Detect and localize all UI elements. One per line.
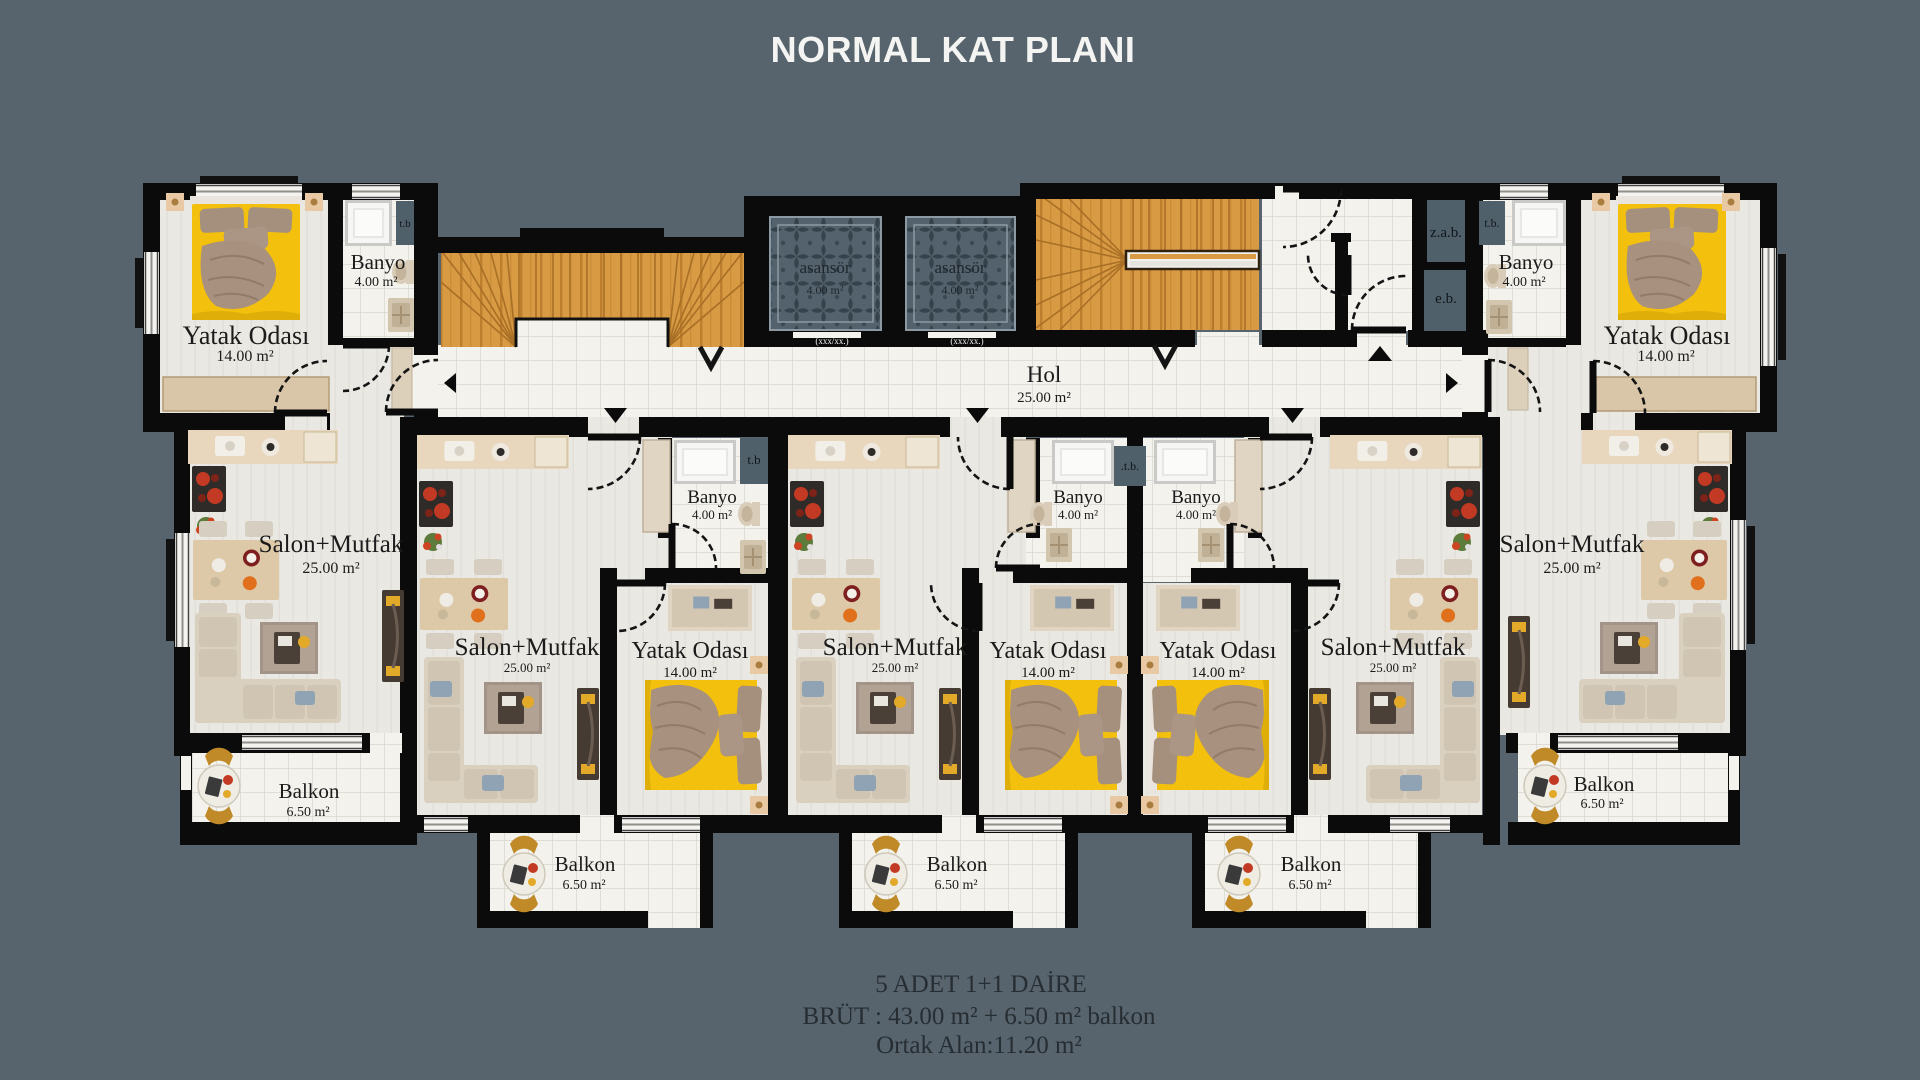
svg-text:t.b: t.b (747, 452, 760, 467)
svg-text:Yatak Odası: Yatak Odası (1160, 638, 1277, 664)
svg-text:Salon+Mutfak: Salon+Mutfak (1500, 531, 1645, 558)
svg-text:25.00 m²: 25.00 m² (1543, 560, 1600, 577)
svg-text:6.50 m²: 6.50 m² (562, 878, 605, 893)
svg-text:4.00 m²: 4.00 m² (1058, 507, 1098, 522)
svg-text:Banyo: Banyo (1053, 487, 1103, 508)
svg-text:25.00 m²: 25.00 m² (872, 660, 919, 675)
svg-text:z.a.b.: z.a.b. (1430, 225, 1462, 241)
svg-text:6.50 m²: 6.50 m² (934, 878, 977, 893)
svg-text:t.b: t.b (399, 218, 411, 230)
svg-text:Balkon: Balkon (927, 852, 988, 876)
svg-text:(xxx/xx.): (xxx/xx.) (950, 336, 983, 346)
svg-text:Yatak Odası: Yatak Odası (1604, 321, 1731, 350)
svg-text:Balkon: Balkon (279, 779, 340, 803)
svg-text:25.00 m²: 25.00 m² (504, 660, 551, 675)
svg-text:(xxx/xx.): (xxx/xx.) (815, 336, 848, 346)
svg-text:Yatak Odası: Yatak Odası (183, 321, 310, 350)
svg-text:25.00 m²: 25.00 m² (1370, 660, 1417, 675)
svg-text:Yatak Odası: Yatak Odası (632, 638, 749, 664)
svg-text:Salon+Mutfak: Salon+Mutfak (259, 531, 404, 558)
svg-text:25.00 m²: 25.00 m² (302, 560, 359, 577)
svg-text:14.00 m²: 14.00 m² (1637, 348, 1694, 365)
svg-text:Banyo: Banyo (687, 487, 737, 508)
svg-text:4.00 m²: 4.00 m² (1502, 275, 1545, 290)
svg-text:BRÜT : 43.00 m² + 6.50 m² balk: BRÜT : 43.00 m² + 6.50 m² balkon (803, 1003, 1156, 1030)
svg-text:Salon+Mutfak: Salon+Mutfak (455, 634, 600, 661)
svg-text:e.b.: e.b. (1435, 291, 1457, 307)
svg-text:14.00 m²: 14.00 m² (1191, 665, 1245, 681)
svg-text:4.00 m²: 4.00 m² (807, 283, 844, 297)
svg-text:Yatak Odası: Yatak Odası (990, 638, 1107, 664)
svg-text:14.00 m²: 14.00 m² (216, 348, 273, 365)
svg-text:Hol: Hol (1027, 362, 1062, 387)
svg-text:4.00 m²: 4.00 m² (1176, 507, 1216, 522)
svg-text:4.00 m²: 4.00 m² (692, 507, 732, 522)
svg-text:Balkon: Balkon (1281, 852, 1342, 876)
svg-text:25.00 m²: 25.00 m² (1017, 390, 1071, 406)
svg-text:Salon+Mutfak: Salon+Mutfak (1321, 634, 1466, 661)
svg-text:Balkon: Balkon (555, 852, 616, 876)
svg-text:Banyo: Banyo (1499, 250, 1554, 274)
svg-text:6.50 m²: 6.50 m² (1580, 797, 1623, 812)
svg-text:Salon+Mutfak: Salon+Mutfak (823, 634, 968, 661)
svg-text:t.b.: t.b. (1484, 216, 1499, 230)
svg-text:Ortak Alan:11.20 m²: Ortak Alan:11.20 m² (876, 1032, 1082, 1059)
svg-text:asansör: asansör (800, 258, 851, 277)
svg-text:Banyo: Banyo (351, 250, 406, 274)
svg-text:6.50 m²: 6.50 m² (1288, 878, 1331, 893)
svg-text:4.00 m²: 4.00 m² (354, 275, 397, 290)
svg-text:6.50 m²: 6.50 m² (286, 805, 329, 820)
svg-text:Banyo: Banyo (1171, 487, 1221, 508)
svg-text:14.00 m²: 14.00 m² (663, 665, 717, 681)
svg-text:.t.b.: .t.b. (1121, 459, 1139, 473)
svg-text:5 ADET 1+1 DAİRE: 5 ADET 1+1 DAİRE (875, 971, 1087, 998)
svg-text:NORMAL KAT PLANI: NORMAL KAT PLANI (771, 29, 1136, 70)
svg-text:asansör: asansör (935, 258, 986, 277)
svg-text:14.00 m²: 14.00 m² (1021, 665, 1075, 681)
svg-text:Balkon: Balkon (1574, 772, 1635, 796)
svg-text:4.00 m²: 4.00 m² (942, 283, 979, 297)
